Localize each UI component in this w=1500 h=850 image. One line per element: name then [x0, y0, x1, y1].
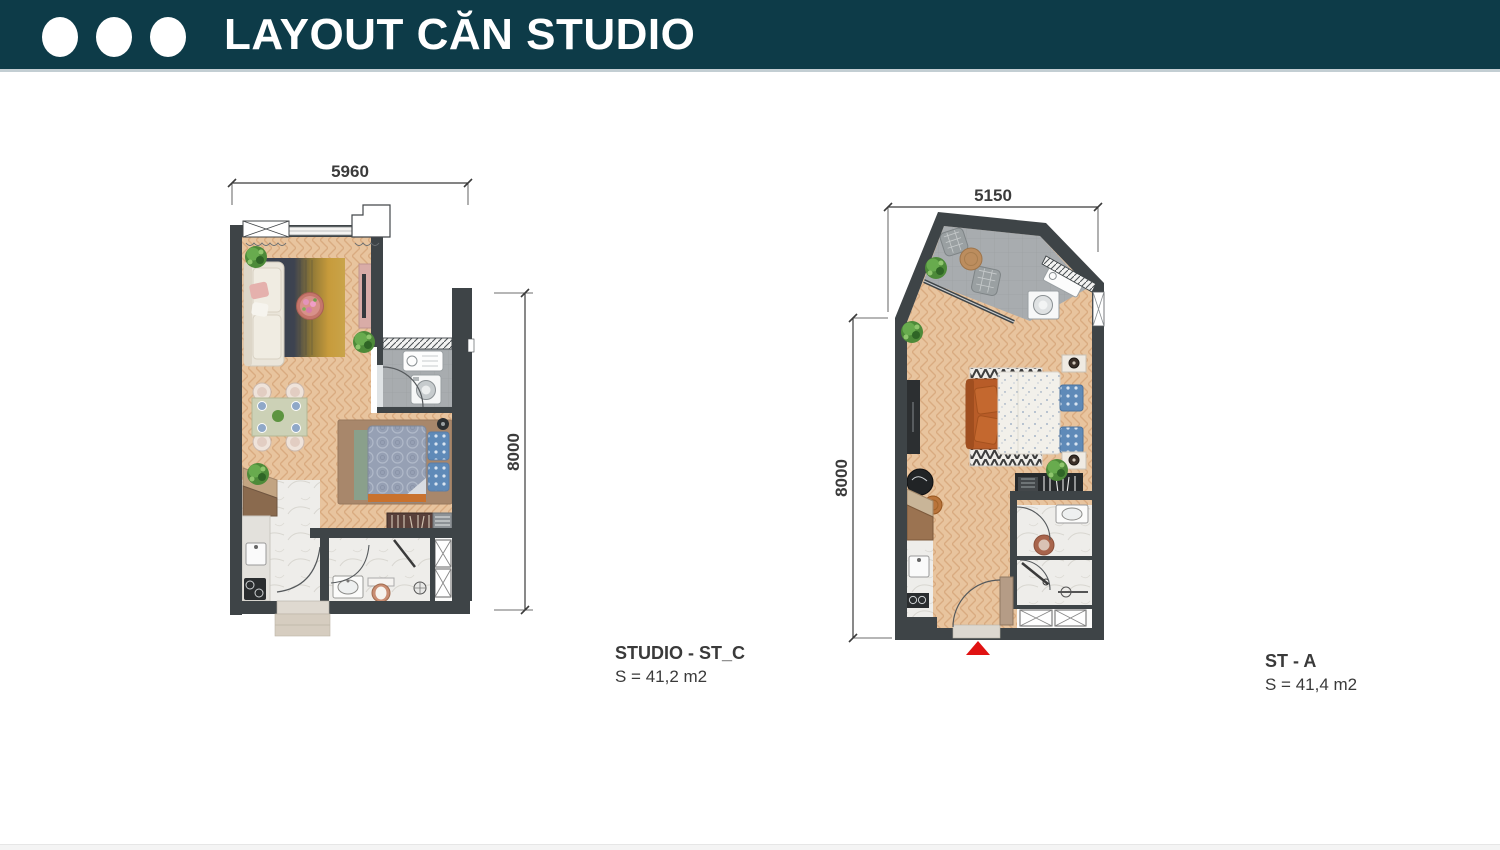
plan-name: ST - A [1265, 650, 1357, 673]
coffee-table [297, 293, 324, 320]
balcony-door-opening [377, 365, 383, 407]
footer-divider [0, 844, 1500, 850]
pillow [1060, 385, 1083, 411]
slide: LAYOUT CĂN STUDIO [0, 0, 1500, 850]
plan-area: S = 41,4 m2 [1265, 673, 1357, 696]
entrance-arrow-icon [966, 641, 990, 655]
pillow [1060, 427, 1083, 453]
plant [245, 246, 267, 268]
wardrobe [435, 540, 451, 597]
dim-height-label: 8000 [504, 433, 523, 471]
floor-plan-st-a: 5150 8000 [830, 185, 1190, 685]
cooktop [244, 578, 266, 600]
sofa [966, 379, 1002, 449]
balcony-railing [383, 338, 452, 349]
dim-height-label: 8000 [832, 459, 851, 497]
floor-plan-studio-st-c: 5960 8000 [200, 150, 540, 660]
plant [901, 321, 923, 343]
plant [925, 257, 947, 279]
tv-cabinet [359, 264, 372, 328]
entry-threshold [277, 601, 329, 614]
plan-label-st-a: ST - A S = 41,4 m2 [1265, 650, 1357, 696]
bullet-dot-icon [150, 17, 186, 57]
plant [1046, 459, 1068, 481]
dim-width-label: 5960 [331, 162, 369, 181]
balcony-table [960, 248, 982, 270]
plan-area: S = 41,2 m2 [615, 665, 745, 688]
bullet-dot-icon [96, 17, 132, 57]
bed [338, 418, 452, 504]
pillow [428, 432, 449, 460]
plant [353, 331, 375, 353]
kitchen-floor [907, 540, 933, 628]
plan-label-st-c: STUDIO - ST_C S = 41,2 m2 [615, 642, 745, 688]
entry-threshold [953, 625, 1000, 638]
exterior-step [352, 205, 390, 237]
tv-icon [362, 274, 366, 318]
page-title: LAYOUT CĂN STUDIO [224, 10, 695, 60]
plan-name: STUDIO - ST_C [615, 642, 745, 665]
sofa [244, 262, 284, 366]
bullet-dot-icon [42, 17, 78, 57]
header-bar: LAYOUT CĂN STUDIO [0, 0, 1500, 72]
entry-door [1000, 577, 1013, 625]
pillow [428, 463, 449, 491]
dim-width-label: 5150 [974, 186, 1012, 205]
plant [247, 463, 269, 485]
